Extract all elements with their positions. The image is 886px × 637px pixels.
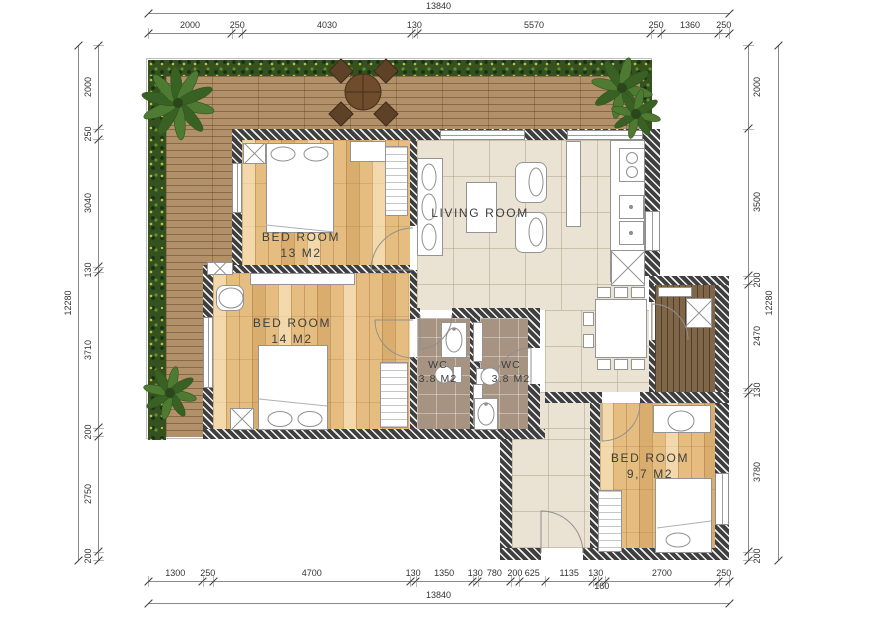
room-label-bedroom-13: BED ROOM 13 M2 <box>262 229 340 261</box>
room-labels: BED ROOM 13 M2 BED ROOM 14 M2 LIVING ROO… <box>0 0 886 637</box>
room-name: LIVING ROOM <box>431 205 529 221</box>
room-label-wc2: WC 3.8 M2 <box>492 358 531 386</box>
room-name: WC <box>492 358 531 372</box>
floor-plan-canvas: 1384020002504030130557025013602501300250… <box>0 0 886 637</box>
room-label-bedroom-14: BED ROOM 14 M2 <box>253 315 331 347</box>
room-area: 14 M2 <box>253 331 331 347</box>
room-name: BED ROOM <box>262 229 340 245</box>
room-area: 13 M2 <box>262 245 340 261</box>
room-name: WC <box>419 358 458 372</box>
room-label-wc1: WC 3.8 M2 <box>419 358 458 386</box>
room-area: 3.8 M2 <box>492 372 531 386</box>
room-label-bedroom-97: BED ROOM 9,7 M2 <box>611 450 689 482</box>
room-area: 9,7 M2 <box>611 466 689 482</box>
room-name: BED ROOM <box>611 450 689 466</box>
room-label-living: LIVING ROOM <box>431 205 529 221</box>
room-name: BED ROOM <box>253 315 331 331</box>
room-area: 3.8 M2 <box>419 372 458 386</box>
